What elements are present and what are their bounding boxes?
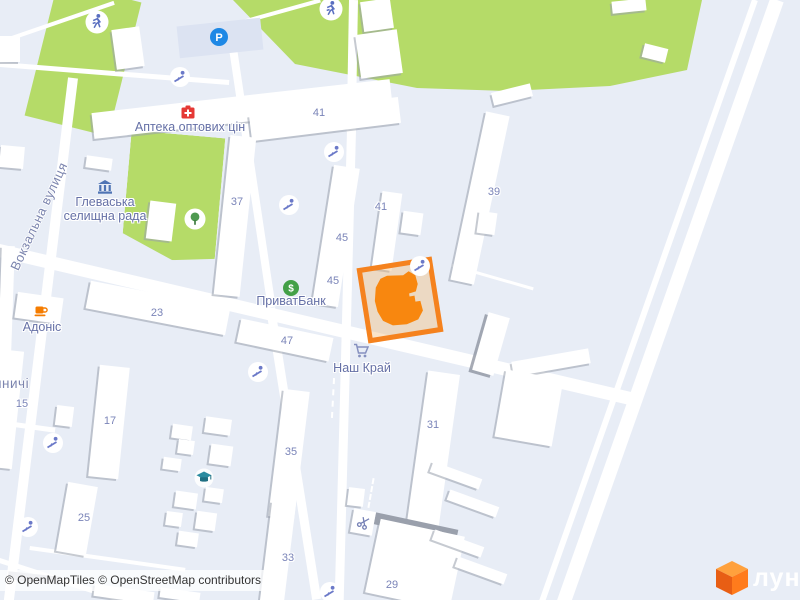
building <box>174 491 198 510</box>
pharmacy-label: Аптека оптових цін <box>135 120 245 134</box>
house-number-17: 17 <box>104 415 116 427</box>
building <box>177 531 199 548</box>
house-number-45b: 45 <box>327 275 339 287</box>
svg-text:P: P <box>215 32 222 44</box>
lun-cube-icon <box>716 561 748 595</box>
house-number-23: 23 <box>151 307 163 319</box>
building-townhall <box>146 201 176 242</box>
house-number-15: 15 <box>16 398 28 410</box>
building-31 <box>406 371 460 534</box>
building <box>165 511 183 527</box>
building <box>455 556 508 584</box>
playground-icon <box>18 517 38 537</box>
playground-icon <box>43 433 63 453</box>
building <box>55 405 74 427</box>
lun-logo[interactable]: лун <box>716 561 800 595</box>
selected-plot-highlight[interactable] <box>357 257 444 344</box>
house-number-39: 39 <box>488 186 500 198</box>
pharmacy-icon <box>180 104 196 120</box>
house-number-45a: 45 <box>336 232 348 244</box>
playground-icon <box>410 256 430 276</box>
lun-logo-text: лун <box>753 564 800 593</box>
map-canvas[interactable]: P $ Аптека оптових цін Глеваська селищна… <box>0 0 800 600</box>
townhall-label-line1: Глеваська <box>75 195 134 209</box>
road-right-wide <box>557 0 784 600</box>
building <box>171 424 193 441</box>
school-icon <box>195 469 214 488</box>
cart-icon <box>353 343 370 360</box>
building <box>204 487 224 503</box>
playground-icon <box>324 142 344 162</box>
footpath-dashed-1 <box>331 378 335 418</box>
house-number-37: 37 <box>231 196 243 208</box>
playground-icon <box>170 67 190 87</box>
building <box>355 29 403 78</box>
building <box>360 0 394 32</box>
cafe-label: Адоніс <box>23 320 62 334</box>
house-number-31: 31 <box>427 419 439 431</box>
townhall-label-line2: селищна рада <box>64 209 147 223</box>
field-area-top-right <box>225 0 710 100</box>
building <box>195 511 217 532</box>
building <box>347 487 365 507</box>
playground-icon <box>320 582 340 600</box>
place-label-partial: иничі <box>0 376 29 391</box>
footpath-dashed-2 <box>367 478 374 508</box>
running-icon <box>320 0 343 21</box>
bank-label: ПриватБанк <box>256 294 325 308</box>
house-number-25: 25 <box>78 512 90 524</box>
building <box>401 211 424 236</box>
path-bottom-left-2 <box>29 546 185 572</box>
scissors-icon <box>357 515 372 530</box>
building <box>85 155 112 171</box>
supermarket-label: Наш Край <box>333 361 391 375</box>
house-number-33: 33 <box>282 552 294 564</box>
building <box>162 457 181 471</box>
house-number-35: 35 <box>285 446 297 458</box>
building <box>111 26 144 70</box>
running-icon <box>86 11 109 34</box>
building <box>447 489 500 517</box>
house-number-29: 29 <box>386 579 398 591</box>
building <box>495 369 564 446</box>
building <box>204 416 232 435</box>
svg-text:$: $ <box>288 284 294 295</box>
cafe-icon <box>34 304 49 319</box>
playground-icon <box>279 195 299 215</box>
parking-icon: P <box>210 28 228 46</box>
building <box>0 36 20 62</box>
townhall-icon <box>97 179 113 195</box>
building <box>477 211 498 235</box>
house-number-41a: 41 <box>313 107 325 119</box>
building <box>209 444 234 467</box>
park-area-townhall <box>121 130 226 264</box>
house-number-47: 47 <box>281 335 293 347</box>
building <box>177 439 195 455</box>
map-attribution[interactable]: © OpenMapTiles © OpenStreetMap contribut… <box>0 570 268 591</box>
playground-icon <box>248 362 268 382</box>
road-right-narrow <box>539 0 758 600</box>
house-number-41b: 41 <box>375 201 387 213</box>
building <box>0 145 25 169</box>
tree-icon <box>185 209 206 230</box>
building-39 <box>450 111 509 284</box>
